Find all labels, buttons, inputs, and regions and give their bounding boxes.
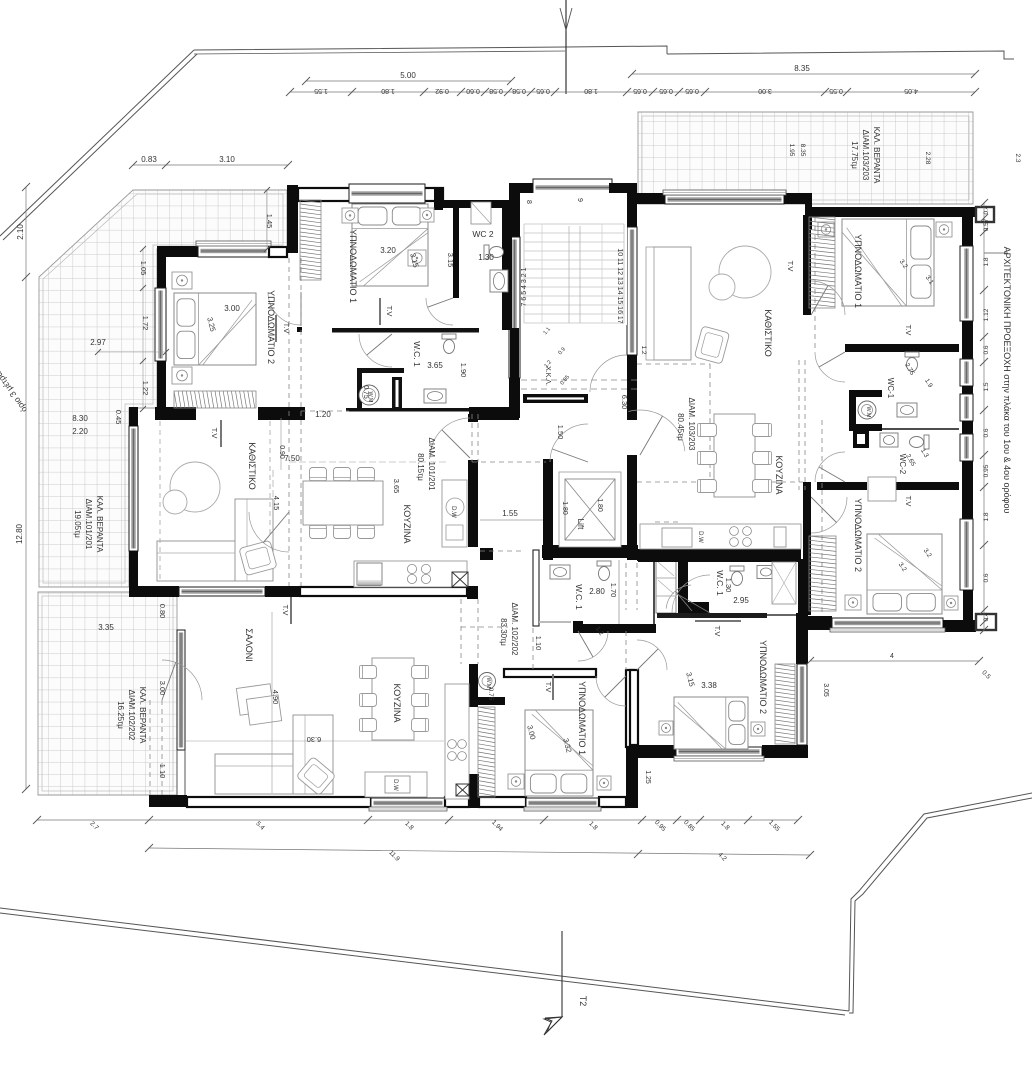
- svg-text:ΚΟΥΖΙΝΑ: ΚΟΥΖΙΝΑ: [392, 684, 402, 723]
- svg-text:T.V: T.V: [385, 306, 394, 317]
- svg-text:0.92: 0.92: [435, 87, 449, 94]
- svg-text:3.00: 3.00: [224, 304, 240, 313]
- svg-text:1.30: 1.30: [724, 578, 733, 593]
- svg-text:1.2: 1.2: [640, 345, 647, 354]
- svg-text:T.V: T.V: [281, 605, 290, 616]
- svg-text:1.05: 1.05: [139, 261, 148, 276]
- svg-text:3.20: 3.20: [380, 246, 396, 255]
- svg-text:6.30: 6.30: [307, 735, 322, 744]
- svg-text:ΚΟΥΖΙΝΑ: ΚΟΥΖΙΝΑ: [402, 505, 412, 544]
- svg-text:T.V: T.V: [904, 325, 913, 336]
- svg-text:WC-1: WC-1: [886, 378, 895, 399]
- svg-text:W.M: W.M: [865, 407, 871, 418]
- svg-text:0.58: 0.58: [512, 87, 526, 94]
- svg-text:0.65: 0.65: [659, 87, 673, 94]
- svg-text:1.12: 1.12: [983, 308, 990, 321]
- svg-text:Lift: Lift: [576, 519, 585, 530]
- svg-text:D.W: D.W: [697, 531, 703, 543]
- svg-text:ΥΠΝΟΔΩΜΑΤΙΟ 2: ΥΠΝΟΔΩΜΑΤΙΟ 2: [266, 290, 276, 364]
- svg-text:12.80: 12.80: [15, 523, 24, 544]
- svg-text:1.72: 1.72: [141, 316, 150, 331]
- svg-text:ΥΠΝΟΔΩΜΑΤΙΟ 2: ΥΠΝΟΔΩΜΑΤΙΟ 2: [853, 498, 863, 572]
- svg-text:0.90: 0.90: [278, 445, 285, 459]
- svg-text:0.6: 0.6: [983, 573, 990, 582]
- svg-text:0.57: 0.57: [983, 218, 990, 231]
- svg-text:3.05: 3.05: [822, 683, 829, 697]
- svg-text:T.V: T.V: [210, 428, 219, 439]
- svg-text:ΚΟΥΖΙΝΑ: ΚΟΥΖΙΝΑ: [774, 456, 784, 495]
- svg-text:1.22: 1.22: [141, 381, 150, 396]
- svg-text:0.55: 0.55: [829, 87, 843, 94]
- svg-text:Χ.Κ.Λ.: Χ.Κ.Λ.: [544, 366, 551, 386]
- svg-text:0.58: 0.58: [489, 87, 503, 94]
- svg-text:17.75τμ: 17.75τμ: [850, 141, 859, 169]
- svg-text:10 11 12 13 14 15 16 17: 10 11 12 13 14 15 16 17: [616, 248, 623, 323]
- svg-text:ΥΠΝΟΔΩΜΑΤΙΟ 1: ΥΠΝΟΔΩΜΑΤΙΟ 1: [577, 681, 587, 755]
- svg-text:8: 8: [525, 200, 532, 204]
- svg-text:1.20: 1.20: [315, 410, 331, 419]
- svg-text:83.30τμ: 83.30τμ: [499, 618, 508, 646]
- svg-text:80.45τμ: 80.45τμ: [676, 413, 685, 441]
- svg-text:4: 4: [890, 653, 894, 660]
- svg-text:1.55: 1.55: [502, 509, 518, 518]
- svg-text:ΚΑΘΙΣΤΙΚΟ: ΚΑΘΙΣΤΙΚΟ: [247, 442, 257, 490]
- svg-text:1.55: 1.55: [314, 87, 328, 94]
- svg-text:2.20: 2.20: [72, 427, 88, 436]
- svg-text:ΔΙΑΜ.101/201: ΔΙΑΜ.101/201: [84, 499, 93, 550]
- svg-text:WC 2: WC 2: [472, 229, 494, 239]
- svg-text:W.C. 1: W.C. 1: [715, 570, 725, 596]
- svg-text:7.50: 7.50: [284, 454, 300, 463]
- svg-text:3.65: 3.65: [392, 479, 401, 494]
- svg-text:ΔΙΑΜ. 103/203: ΔΙΑΜ. 103/203: [687, 398, 696, 451]
- svg-text:0.65: 0.65: [685, 87, 699, 94]
- svg-text:19.05τμ: 19.05τμ: [73, 510, 82, 538]
- svg-text:3.65: 3.65: [427, 361, 443, 370]
- svg-text:1.8: 1.8: [983, 512, 990, 521]
- svg-text:ΚΑΛ. ΒΕΡΑΝΤΑ: ΚΑΛ. ΒΕΡΑΝΤΑ: [872, 127, 881, 184]
- svg-text:ΔΙΑΜ. 101/201: ΔΙΑΜ. 101/201: [427, 438, 436, 491]
- svg-text:0.75: 0.75: [362, 385, 369, 399]
- svg-text:2.3: 2.3: [1014, 153, 1021, 162]
- svg-text:80.15τμ: 80.15τμ: [416, 453, 425, 481]
- svg-text:T.V: T.V: [544, 682, 553, 693]
- svg-text:0.80: 0.80: [158, 604, 167, 619]
- svg-text:4.15: 4.15: [272, 496, 281, 511]
- svg-text:ΣΑΛΟΝΙ: ΣΑΛΟΝΙ: [244, 628, 254, 661]
- svg-text:5.00: 5.00: [400, 71, 416, 80]
- svg-text:1.45: 1.45: [265, 214, 274, 229]
- svg-text:3.00: 3.00: [158, 681, 167, 696]
- svg-text:1.10: 1.10: [534, 636, 543, 651]
- svg-text:7 6 5 4 3 2 1: 7 6 5 4 3 2 1: [521, 267, 528, 306]
- svg-text:8.35: 8.35: [794, 64, 810, 73]
- svg-text:1.80: 1.80: [381, 87, 395, 94]
- svg-text:ΚΑΛ. ΒΕΡΑΝΤΑ: ΚΑΛ. ΒΕΡΑΝΤΑ: [138, 687, 147, 744]
- svg-text:0.4: 0.4: [983, 612, 990, 621]
- svg-text:ΔΙΑΜ. 102/202: ΔΙΑΜ. 102/202: [510, 603, 519, 656]
- svg-text:1.50: 1.50: [556, 425, 565, 440]
- svg-text:3.10: 3.10: [219, 155, 235, 164]
- svg-text:1.80: 1.80: [584, 87, 598, 94]
- svg-text:2.95: 2.95: [733, 596, 749, 605]
- svg-text:0.83: 0.83: [141, 155, 157, 164]
- svg-text:4.90: 4.90: [271, 690, 280, 705]
- svg-text:16.25τμ: 16.25τμ: [116, 701, 125, 729]
- svg-text:D.W: D.W: [450, 506, 456, 518]
- svg-text:ΥΠΝΟΔΩΜΑΤΙΟ 1: ΥΠΝΟΔΩΜΑΤΙΟ 1: [853, 234, 863, 308]
- svg-text:1.95: 1.95: [788, 144, 795, 157]
- svg-text:ΚΑΛ. ΒΕΡΑΝΤΑ: ΚΑΛ. ΒΕΡΑΝΤΑ: [95, 496, 104, 553]
- svg-text:0.75: 0.75: [487, 688, 494, 701]
- svg-text:1.30: 1.30: [478, 253, 494, 262]
- svg-text:2.10: 2.10: [16, 224, 25, 240]
- svg-text:0.65: 0.65: [633, 87, 647, 94]
- svg-text:3.38: 3.38: [701, 681, 717, 690]
- svg-text:3.35: 3.35: [98, 623, 114, 632]
- svg-text:2.97: 2.97: [90, 338, 106, 347]
- svg-text:0.95: 0.95: [983, 464, 990, 477]
- svg-text:0.60: 0.60: [466, 87, 480, 94]
- svg-text:6.30: 6.30: [620, 395, 629, 410]
- svg-text:1.8: 1.8: [983, 257, 990, 266]
- svg-text:Τ2: Τ2: [578, 996, 588, 1007]
- svg-text:ΥΠΝΟΔΩΜΑΤΙΟ 2: ΥΠΝΟΔΩΜΑΤΙΟ 2: [758, 640, 768, 714]
- svg-text:ΑΡΧΙΤΕΚΤΟΝΙΚΗ ΠΡΟΕΞΟΧΗ στην πλ: ΑΡΧΙΤΕΚΤΟΝΙΚΗ ΠΡΟΕΞΟΧΗ στην πλάκα του 1ο…: [1002, 247, 1012, 514]
- svg-text:T.V: T.V: [282, 323, 291, 334]
- svg-text:9: 9: [576, 198, 583, 202]
- svg-text:2.80: 2.80: [589, 587, 605, 596]
- svg-text:3.00: 3.00: [758, 87, 772, 94]
- svg-text:0.4: 0.4: [983, 205, 990, 214]
- svg-text:1.5: 1.5: [983, 382, 990, 391]
- svg-text:8.35: 8.35: [799, 144, 806, 157]
- svg-text:W.C. 1: W.C. 1: [574, 584, 584, 610]
- svg-text:1.70: 1.70: [609, 583, 618, 598]
- svg-text:1.80: 1.80: [561, 501, 568, 515]
- svg-text:1.90: 1.90: [459, 363, 468, 378]
- svg-text:1.10: 1.10: [158, 764, 167, 779]
- svg-text:ΔΙΑΜ.103/203: ΔΙΑΜ.103/203: [861, 130, 870, 181]
- svg-text:D.W: D.W: [392, 779, 398, 791]
- svg-text:T.V: T.V: [786, 261, 795, 272]
- svg-text:0.6: 0.6: [983, 345, 990, 354]
- svg-text:T.V: T.V: [713, 626, 722, 637]
- svg-text:3.15: 3.15: [446, 253, 455, 268]
- svg-text:T.V: T.V: [904, 496, 913, 507]
- svg-text:1.80: 1.80: [596, 498, 603, 512]
- svg-text:2.28: 2.28: [924, 152, 931, 165]
- svg-text:1.25: 1.25: [644, 770, 651, 784]
- svg-text:ΚΑΘΙΣΤΙΚΟ: ΚΑΘΙΣΤΙΚΟ: [763, 309, 773, 357]
- svg-text:ΥΠΝΟΔΩΜΑΤΙΟ 1: ΥΠΝΟΔΩΜΑΤΙΟ 1: [348, 229, 358, 303]
- svg-text:ΔΙΑΜ.102/202: ΔΙΑΜ.102/202: [127, 690, 136, 741]
- svg-text:0.65: 0.65: [536, 87, 550, 94]
- svg-text:W.C. 1: W.C. 1: [412, 341, 422, 367]
- svg-text:8.30: 8.30: [72, 414, 88, 423]
- svg-text:0.6: 0.6: [983, 428, 990, 437]
- svg-text:0.45: 0.45: [114, 410, 123, 425]
- svg-text:4.05: 4.05: [904, 87, 918, 94]
